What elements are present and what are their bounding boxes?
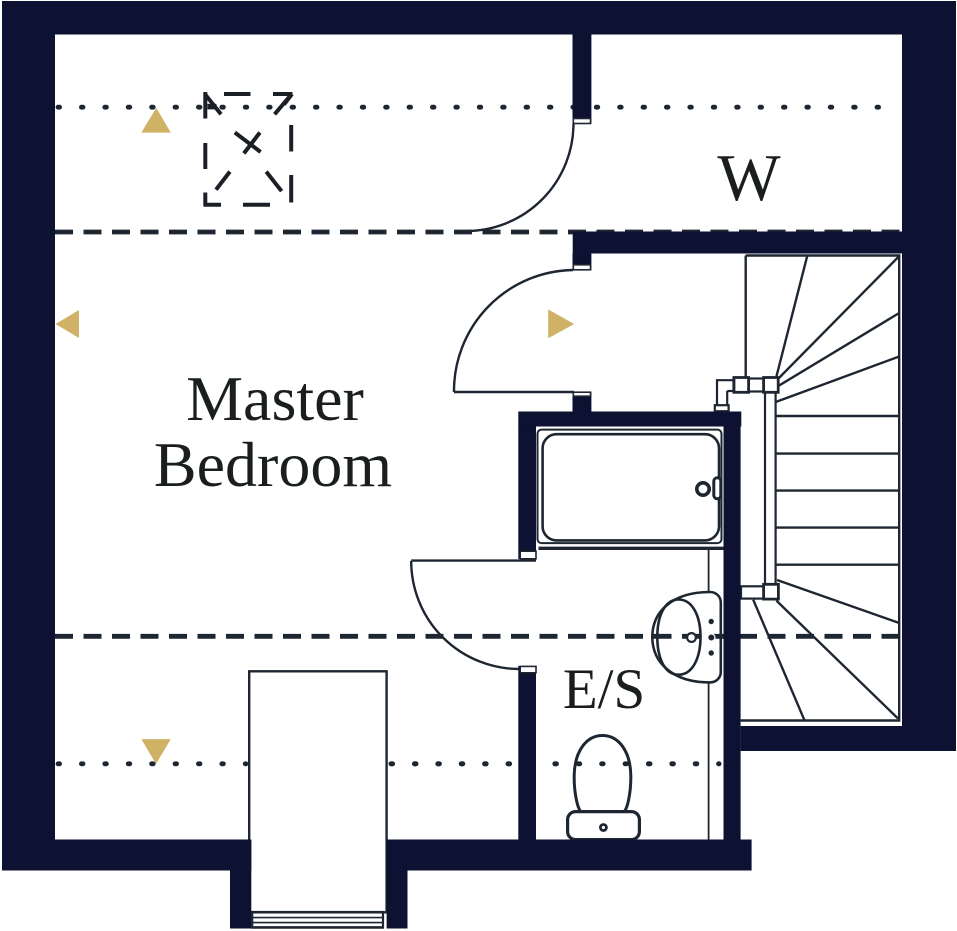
svg-text:Bedroom: Bedroom (154, 429, 392, 500)
svg-text:W: W (717, 141, 781, 215)
svg-text:E/S: E/S (563, 658, 645, 721)
svg-text:Master: Master (186, 363, 364, 434)
